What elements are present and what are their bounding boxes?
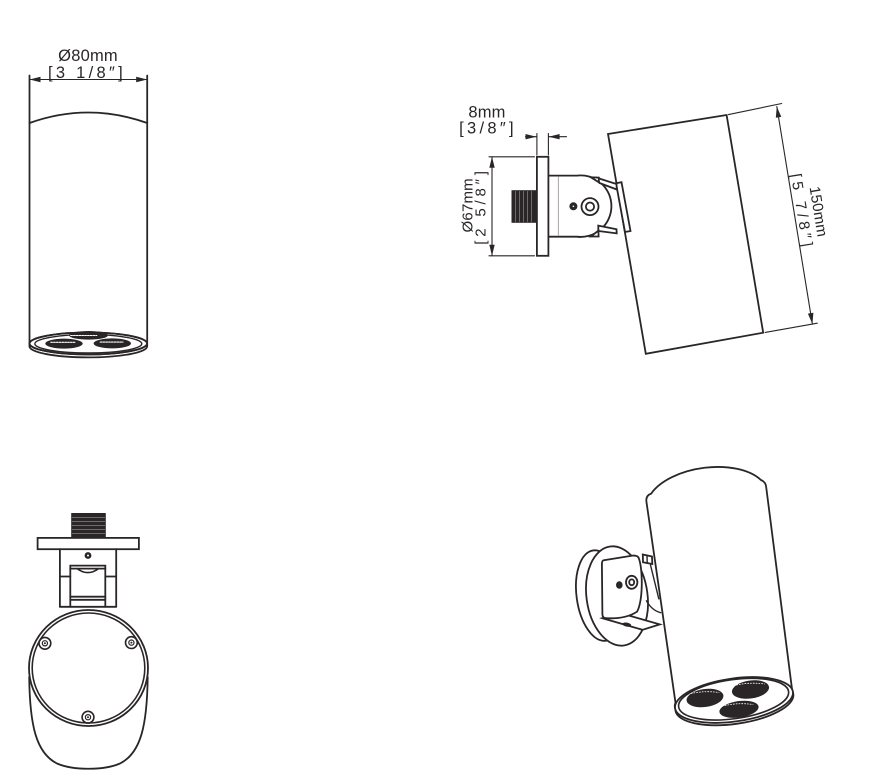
- svg-text:Ø80mm: Ø80mm: [58, 47, 118, 65]
- svg-text:[3/8″]: [3/8″]: [459, 120, 517, 138]
- svg-text:8mm: 8mm: [468, 103, 505, 121]
- svg-text:[2 5/8″]: [2 5/8″]: [473, 167, 490, 244]
